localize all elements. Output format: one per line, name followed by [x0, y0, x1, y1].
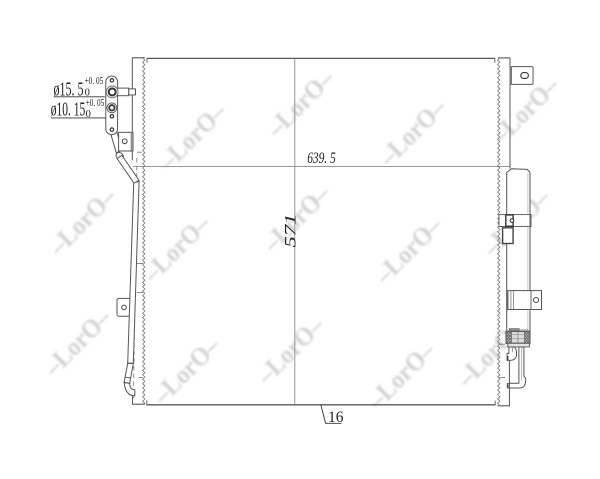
- svg-text:16: 16: [328, 409, 344, 426]
- svg-text:+0. 05: +0. 05: [85, 76, 104, 87]
- svg-text:+0. 05: +0. 05: [86, 98, 105, 109]
- svg-text:639. 5: 639. 5: [307, 150, 336, 167]
- svg-text:ø10. 15: ø10. 15: [51, 99, 86, 121]
- svg-text:571: 571: [282, 214, 299, 248]
